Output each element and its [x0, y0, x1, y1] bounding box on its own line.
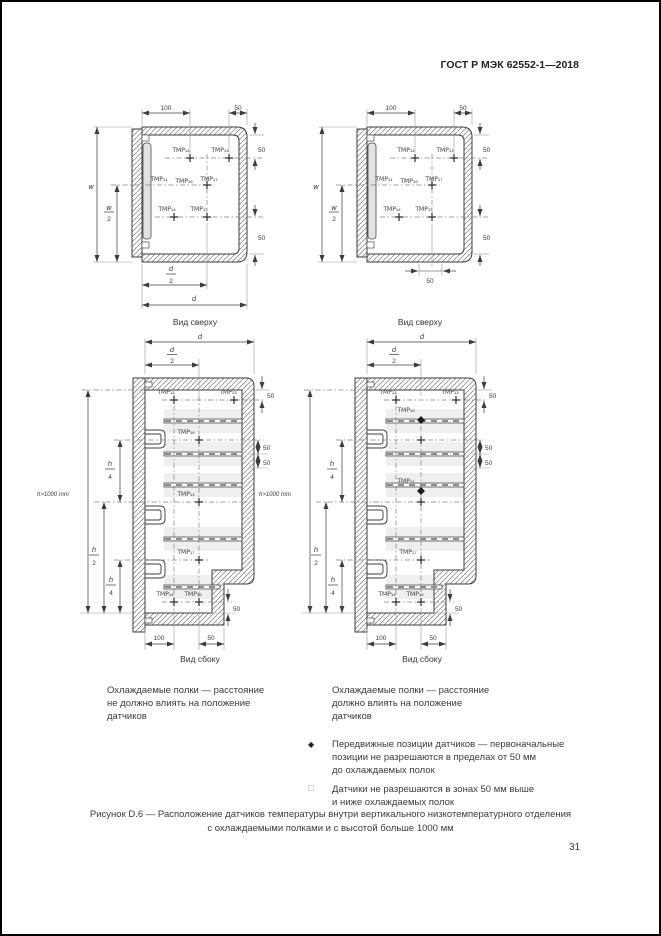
- sensor-cross-tmp14: [170, 598, 178, 606]
- dim-d2-den: 2: [169, 278, 173, 285]
- sensor-cross-tmp15: [417, 598, 425, 606]
- door-pocket: [367, 506, 387, 524]
- dim-h4b-num: h: [109, 576, 113, 584]
- diagram-top-view-left: 100 50 w w 2 50 50 d 2 d TMP₁₂ TMP₁₃ TMP…: [87, 97, 287, 332]
- dim-h4-num: h: [330, 460, 334, 468]
- square-bullet-icon: □: [308, 783, 313, 793]
- dim-50-shelf-below: 50: [485, 460, 493, 467]
- note-line: Датчики не разрешаются в зонах 50 мм выш…: [332, 783, 534, 796]
- label-tmp15: TMP₁₅: [405, 591, 424, 598]
- door-gasket-top: [367, 382, 374, 387]
- note-left-shelves: Охлаждаемые полки — расстояние не должно…: [107, 684, 264, 723]
- dim-50: 50: [459, 105, 467, 112]
- dim-h-total: h>1000 mm: [259, 492, 291, 498]
- label-tmp15: TMP₁₅: [414, 206, 433, 213]
- dim-h2-den: 2: [92, 560, 96, 567]
- dim-w2-num: w: [106, 204, 112, 212]
- sensor-cross-tmp17: [195, 556, 203, 564]
- label-tmp13: TMP₁₃: [210, 147, 229, 154]
- door-wall: [133, 378, 145, 632]
- dim-50: 50: [234, 105, 242, 112]
- diagram-side-view-left: d d 2 h>1000 mm h 4 h 2 h 4 50 50 50 50 …: [32, 330, 292, 670]
- note-line: позиции не разрешаются в пределах от 50 …: [332, 751, 564, 764]
- label-tmp13: TMP₁₃: [435, 147, 454, 154]
- label-tmp12: TMP₁₂: [156, 389, 175, 396]
- label-tmp14: TMP₁₄: [157, 206, 176, 213]
- sensor-cross-tmp13: [230, 396, 238, 404]
- label-tmp14: TMP₁₄: [377, 591, 396, 598]
- door-gasket-bottom: [142, 242, 149, 248]
- dim-100-bottom: 100: [154, 635, 165, 642]
- label-tmp11: TMP₁₁: [374, 176, 393, 183]
- dim-d: d: [192, 295, 197, 303]
- door-liner: [368, 143, 376, 239]
- door-wall: [132, 129, 142, 257]
- door-gasket-bottom: [145, 618, 152, 623]
- label-tmp17: TMP₁₇: [199, 176, 218, 183]
- dim-h4b-den: 4: [331, 590, 335, 597]
- figure-caption-line: Рисунок D.6 — Расположение датчиков темп…: [2, 808, 659, 822]
- label-tmp11: TMP₁₁: [396, 478, 415, 485]
- document-page: ГОСТ Р МЭК 62552-1—2018: [0, 0, 661, 936]
- door-pocket: [145, 506, 165, 524]
- label-tmp16: TMP₁₆: [396, 407, 415, 414]
- dim-50-right-bottom: 50: [258, 235, 266, 242]
- sensor-cross-tmp11: [195, 498, 203, 506]
- dim-w: w: [88, 183, 94, 191]
- dim-w: w: [313, 183, 319, 191]
- dim-50-bottom: 50: [426, 278, 434, 285]
- dim-50-shelf-above: 50: [485, 445, 493, 452]
- label-tmp15: TMP₁₅: [183, 591, 202, 598]
- label-tmp14: TMP₁₄: [155, 591, 174, 598]
- sensor-cross-tmp15: [428, 213, 436, 221]
- label-tmp17: TMP₁₇: [176, 549, 195, 556]
- sensor-cross-tmp15: [195, 598, 203, 606]
- note-line: датчиков: [332, 710, 489, 723]
- sensor-cross-tmp14: [392, 598, 400, 606]
- figure-caption: Рисунок D.6 — Расположение датчиков темп…: [2, 808, 659, 836]
- caption-top-view-right: Вид сверху: [398, 317, 443, 327]
- dim-100: 100: [386, 105, 397, 112]
- dimension-lines: [97, 113, 255, 305]
- dim-d2-den: 2: [392, 358, 396, 365]
- caption-side-view-left: Вид сбоку: [180, 654, 220, 664]
- door-liner: [143, 143, 151, 239]
- door-gasket-bottom: [367, 242, 374, 248]
- dim-h2-num: h: [314, 546, 318, 554]
- dim-h4-num: h: [108, 460, 112, 468]
- sensor-cross-tmp12: [411, 154, 419, 162]
- note-line: должно влиять на положение: [332, 697, 489, 710]
- label-tmp16: TMP₁₆: [174, 178, 193, 185]
- dim-d2-num: d: [170, 346, 175, 354]
- dim-h4-den: 4: [330, 474, 334, 481]
- diagram-top-view-right: 100 50 w w 2 50 50 50 TMP₁₂ TMP₁₃ TMP₁₁ …: [312, 97, 512, 332]
- door-gasket-top: [142, 135, 149, 141]
- dim-d2-num: d: [392, 346, 397, 354]
- dim-50-bottom: 50: [207, 635, 215, 642]
- dim-w2-num: w: [331, 204, 337, 212]
- door-gasket-top: [145, 382, 152, 387]
- dim-50-bottom: 50: [429, 635, 437, 642]
- label-tmp17: TMP₁₇: [398, 549, 417, 556]
- note-line: Охлаждаемые полки — расстояние: [107, 684, 264, 697]
- standard-reference: ГОСТ Р МЭК 62552-1—2018: [441, 59, 580, 71]
- note-line: до охлаждаемых полок: [332, 764, 564, 777]
- sensor-cross-tmp17: [417, 556, 425, 564]
- label-tmp16: TMP₁₆: [176, 429, 195, 436]
- sensor-cross-tmp13: [225, 154, 233, 162]
- note-line: не должно влиять на положение: [107, 697, 264, 710]
- caption-side-view-right: Вид сбоку: [402, 654, 442, 664]
- label-tmp16: TMP₁₆: [399, 178, 418, 185]
- dim-100: 100: [161, 105, 172, 112]
- label-tmp13: TMP₁₃: [440, 389, 459, 396]
- label-tmp15: TMP₁₅: [189, 206, 208, 213]
- door-wall: [357, 129, 367, 257]
- dim-h2-num: h: [92, 546, 96, 554]
- dim-h4b-num: h: [331, 576, 335, 584]
- figure-caption-line: с охлаждаемыми полками и с высотой больш…: [2, 822, 659, 836]
- caption-top-view-left: Вид сверху: [173, 317, 218, 327]
- note-right-shelves: Охлаждаемые полки — расстояние должно вл…: [332, 684, 489, 723]
- label-tmp11: TMP₁₁: [149, 176, 168, 183]
- label-tmp13: TMP₁₃: [218, 389, 237, 396]
- dim-d2-den: 2: [170, 358, 174, 365]
- dim-h-total: h>1000 mm: [37, 492, 69, 498]
- sensor-cross-tmp14: [170, 213, 178, 221]
- note-line: датчиков: [107, 710, 264, 723]
- dimension-lines: [322, 113, 480, 271]
- dim-h4b-den: 4: [109, 590, 113, 597]
- sensor-cross-tmp14: [395, 213, 403, 221]
- dim-50-right-top: 50: [258, 147, 266, 154]
- label-tmp14: TMP₁₄: [382, 206, 401, 213]
- dim-d: d: [420, 333, 425, 341]
- sensor-cross-tmp15: [203, 213, 211, 221]
- dim-h2-den: 2: [314, 560, 318, 567]
- door-gasket-bottom: [367, 618, 374, 623]
- sensor-cross-tmp13: [452, 396, 460, 404]
- sensor-cross-tmp12: [186, 154, 194, 162]
- label-tmp11: TMP₁₁: [176, 491, 195, 498]
- door-pocket: [145, 560, 165, 578]
- diamond-bullet-icon: ◆: [308, 740, 314, 749]
- sensor-cross-tmp11: [417, 498, 425, 506]
- dim-50-right-bottom: 50: [483, 235, 491, 242]
- sensor-cross-tmp13: [450, 154, 458, 162]
- dim-d: d: [198, 333, 203, 341]
- label-tmp12: TMP₁₂: [171, 147, 190, 154]
- label-tmp12: TMP₁₂: [378, 389, 397, 396]
- dim-w2-den: 2: [107, 216, 111, 223]
- note-movable-positions: Передвижные позиции датчиков — первонача…: [332, 738, 564, 777]
- note-line: Охлаждаемые полки — расстояние: [332, 684, 489, 697]
- door-pocket: [145, 430, 165, 448]
- door-pocket: [367, 560, 387, 578]
- dim-h4-den: 4: [108, 474, 112, 481]
- diagram-side-view-right: d d 2 h>1000 mm h 4 h 2 h 4 50 50 50 50 …: [254, 330, 514, 670]
- label-tmp12: TMP₁₂: [396, 147, 415, 154]
- door-pocket: [367, 430, 387, 448]
- page-number: 31: [569, 842, 580, 853]
- dim-50-bottom-right: 50: [455, 606, 463, 613]
- sensor-cross-tmp12: [392, 396, 400, 404]
- dim-50-right-top: 50: [489, 393, 497, 400]
- door-gasket-top: [367, 135, 374, 141]
- note-forbidden-zones: Датчики не разрешаются в зонах 50 мм выш…: [332, 783, 534, 809]
- label-tmp17: TMP₁₇: [424, 176, 443, 183]
- dim-w2-den: 2: [332, 216, 336, 223]
- dim-d2-num: d: [169, 265, 174, 273]
- dim-50-right-top: 50: [483, 147, 491, 154]
- door-wall: [355, 378, 367, 632]
- dim-100-bottom: 100: [376, 635, 387, 642]
- sensor-cross-tmp12: [170, 396, 178, 404]
- note-line: Передвижные позиции датчиков — первонача…: [332, 738, 564, 751]
- dim-50-bottom-right: 50: [233, 606, 241, 613]
